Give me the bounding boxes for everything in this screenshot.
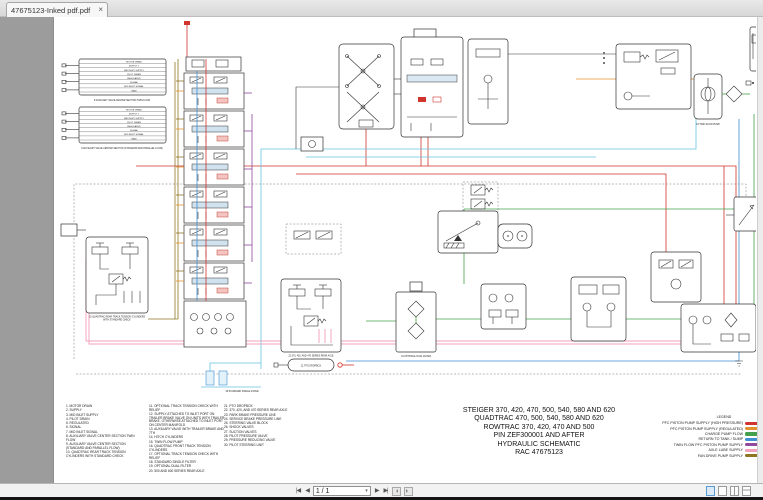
svg-text:MOTOR DRAIN: MOTOR DRAIN bbox=[126, 109, 142, 112]
aux-valve-center-section-twin-flow: MOTOR DRAIN SUPPLY 1 MID INLET SUPPLY PI… bbox=[62, 59, 166, 102]
next-page-button[interactable]: ▶ bbox=[374, 486, 380, 496]
legend-title: LEGEND bbox=[606, 415, 758, 419]
svg-text:9 AUXILIARY VALVE CENTER SECT: 9 AUXILIARY VALVE CENTER SECTION (STANDA… bbox=[81, 147, 163, 150]
priority-lever-box bbox=[438, 211, 498, 253]
legend: LEGEND PFC PISTON PUMP SUPPLY (HIGH PRES… bbox=[606, 415, 758, 458]
gauge-box bbox=[498, 224, 532, 248]
document-canvas: MOTOR DRAIN SUPPLY 1 MID INLET SUPPLY PI… bbox=[0, 17, 763, 483]
svg-text:MID INLET SIGNAL: MID INLET SIGNAL bbox=[124, 133, 144, 136]
vertical-scrollbar[interactable] bbox=[757, 17, 763, 483]
continuous-view-icon[interactable] bbox=[718, 486, 727, 496]
previous-page-button[interactable]: ◀ bbox=[304, 486, 310, 496]
axle-lube-box bbox=[681, 304, 756, 352]
parts-list-column-1: 1. MOTOR DRAIN 2. SUPPLY 3. MID INLET SU… bbox=[66, 405, 138, 459]
page-layout-buttons bbox=[706, 486, 751, 496]
first-page-button[interactable]: |◀ bbox=[295, 486, 301, 496]
svg-text:15 TWIN FLOW PUMP: 15 TWIN FLOW PUMP bbox=[696, 124, 720, 126]
legend-row: FAN DRIVE PUMP SUPPLY bbox=[606, 453, 758, 458]
fit-page-view-icon[interactable] bbox=[742, 486, 751, 496]
tab-title: 47675123-Inked pdf.pdf bbox=[11, 6, 94, 15]
center-manifold bbox=[401, 29, 463, 137]
svg-text:MOTOR DRAIN: MOTOR DRAIN bbox=[126, 61, 142, 64]
parts-item: 20. 500 AND 600 SERIES REAR AXLE bbox=[149, 470, 225, 474]
parts-item: 30. PILOT STEERING UNIT bbox=[224, 444, 302, 448]
chevron-down-icon[interactable]: ▾ bbox=[365, 488, 368, 494]
steering-valve-block bbox=[339, 44, 394, 129]
twin-flow-pump: 15 TWIN FLOW PUMP bbox=[694, 74, 754, 126]
svg-text:10 QUADTRAC REAR TRACK TENSIO: 10 QUADTRAC REAR TRACK TENSION CYLINDERS bbox=[89, 316, 146, 319]
fan-drive-valve-box bbox=[603, 44, 691, 109]
aux-valve-center-section-standard: MOTOR DRAIN SUPPLY 1 MID INLET SUPPLY PI… bbox=[62, 107, 166, 150]
single-filter: 18 STANDARD SINGLE FILTER bbox=[201, 363, 261, 393]
shock-valves bbox=[463, 182, 498, 212]
svg-text:WITH STANDARD CHECK: WITH STANDARD CHECK bbox=[103, 319, 131, 322]
parts-item: 10. QUADTRAC REAR TRACK TENSION CYLINDER… bbox=[66, 451, 138, 458]
single-page-view-icon[interactable] bbox=[706, 486, 715, 496]
svg-text:MID INLET SUPPLY: MID INLET SUPPLY bbox=[124, 118, 144, 120]
svg-text:SIGNAL: SIGNAL bbox=[130, 81, 139, 84]
bottom-toolbar: |◀ ◀ 1 / 1 ▾ ▶ ▶| bbox=[0, 483, 763, 497]
svg-text:REGULATED: REGULATED bbox=[127, 125, 141, 128]
tab-bar: 47675123-Inked pdf.pdf × bbox=[0, 0, 763, 17]
svg-text:MID INLET SIGNAL: MID INLET SIGNAL bbox=[124, 85, 144, 88]
svg-text:SUPPLY 1: SUPPLY 1 bbox=[129, 114, 140, 116]
page-indicator: 1 / 1 bbox=[316, 488, 330, 495]
pto-dropbox: 21 PTO DROPBOX bbox=[274, 359, 354, 371]
document-tab[interactable]: 47675123-Inked pdf.pdf × bbox=[6, 2, 108, 17]
svg-text:22 370, 420, AND 470 SERIES R: 22 370, 420, AND 470 SERIES REAR AXLE bbox=[288, 355, 334, 358]
page-number-field[interactable]: 1 / 1 ▾ bbox=[313, 486, 371, 496]
svg-text:SUPPLY 1: SUPPLY 1 bbox=[129, 66, 140, 68]
svg-text:PILOT DRAIN: PILOT DRAIN bbox=[127, 121, 141, 124]
pilot-steering-unit-box bbox=[651, 252, 701, 302]
left-port-component bbox=[61, 224, 86, 236]
svg-text:REGULATED: REGULATED bbox=[127, 77, 141, 80]
page-navigation: |◀ ◀ 1 / 1 ▾ ▶ ▶| bbox=[295, 484, 413, 498]
two-page-view-icon[interactable] bbox=[730, 486, 739, 496]
trailer-brake-valves bbox=[286, 137, 341, 254]
forward-view-icon[interactable] bbox=[404, 487, 413, 496]
rear-axle-box: 22 370, 420, AND 470 SERIES REAR AXLE bbox=[281, 279, 341, 358]
right-edge-component bbox=[750, 27, 756, 71]
park-brake-box bbox=[571, 277, 626, 341]
svg-text:21 PTO DROPBOX: 21 PTO DROPBOX bbox=[301, 366, 321, 368]
svg-text:8 AUXILIARY VALVE CENTER SECT: 8 AUXILIARY VALVE CENTER SECTION TWIN FL… bbox=[94, 99, 151, 102]
pilot-valve-box bbox=[468, 39, 508, 124]
last-page-button[interactable]: ▶| bbox=[382, 486, 388, 496]
parts-list-column-3: 21. PTO DROPBOX 22. 370, 420, AND 470 SE… bbox=[224, 405, 302, 448]
relief-valve bbox=[726, 197, 756, 231]
track-tension-cylinder-box: 10 QUADTRAC REAR TRACK TENSION CYLINDERS… bbox=[86, 237, 148, 322]
parts-list-column-2: 11. OPTIONAL TRACK TENSION CHECK WITH RE… bbox=[149, 405, 225, 474]
parts-item: 12. SUPPLY ATTACHED TO INLET PORT ON TRA… bbox=[149, 413, 225, 428]
hitch-cylinder-box bbox=[481, 284, 526, 329]
svg-text:19 OPTIONAL DUAL FILTER: 19 OPTIONAL DUAL FILTER bbox=[401, 355, 431, 358]
svg-text:SIGNAL: SIGNAL bbox=[130, 129, 139, 132]
dual-filter-box: 19 OPTIONAL DUAL FILTER bbox=[396, 282, 436, 358]
svg-text:18 STANDARD SINGLE FILTER: 18 STANDARD SINGLE FILTER bbox=[225, 390, 258, 393]
tab-close-icon[interactable]: × bbox=[98, 6, 103, 14]
pdf-page: MOTOR DRAIN SUPPLY 1 MID INLET SUPPLY PI… bbox=[53, 17, 757, 483]
back-view-icon[interactable] bbox=[392, 487, 401, 496]
auxiliary-valve-stack bbox=[176, 21, 252, 347]
svg-text:MID INLET SUPPLY: MID INLET SUPPLY bbox=[124, 70, 144, 72]
svg-text:PILOT DRAIN: PILOT DRAIN bbox=[127, 73, 141, 76]
